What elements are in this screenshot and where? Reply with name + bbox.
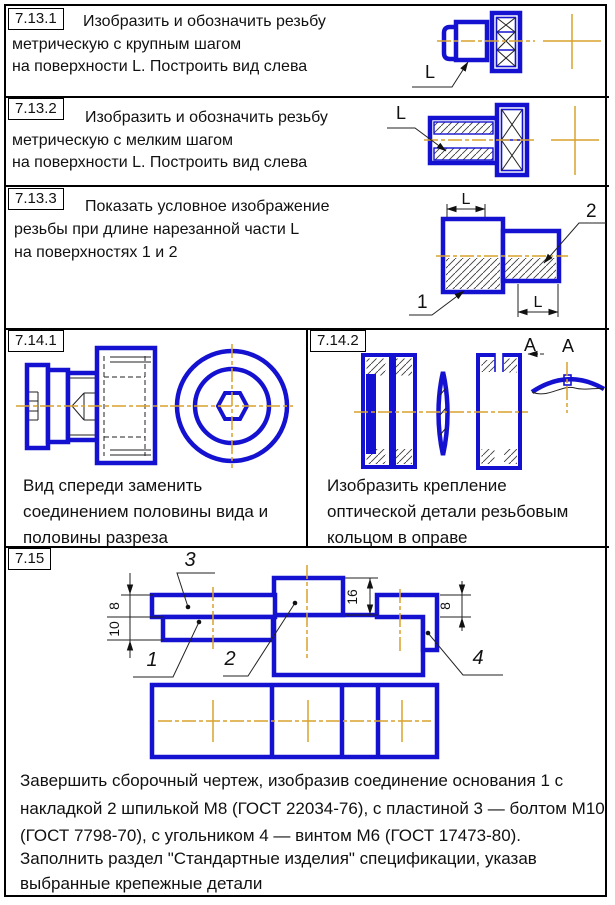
dim-label-8: 8 [106, 602, 122, 610]
section-hatch [504, 359, 517, 373]
section-hatch [482, 360, 495, 372]
section-hatch [396, 449, 412, 464]
dim-label-8: 8 [437, 602, 453, 610]
part-label-2: 2 [223, 648, 235, 670]
dim-label-L: L [462, 191, 471, 208]
leader-dot [426, 631, 431, 636]
worksheet-page: 7.13.1 7.13.2 7.13.3 7.14.1 7.14.2 7.15 … [0, 0, 615, 905]
leader-dot [186, 605, 191, 610]
drawing-7-15: 8 10 16 8 [106, 549, 503, 757]
section-hatch [482, 449, 495, 464]
drawing-7-13-3: L L 1 2 [409, 191, 606, 317]
section-hatch [434, 122, 493, 134]
drawing-7-13-2: L [387, 103, 599, 175]
part-label-1: 1 [417, 292, 428, 313]
dim-label-L: L [534, 294, 543, 311]
surface-label-L: L [396, 103, 406, 123]
section-hatch [434, 148, 493, 160]
part-label-1: 1 [146, 649, 157, 671]
view-label-A: A [562, 336, 574, 356]
mount-stem [389, 357, 396, 465]
surface-label-L: L [425, 62, 435, 82]
part2-boss [274, 578, 343, 615]
section-hatch [446, 258, 500, 289]
lens-outline [439, 372, 448, 455]
part1-plate [163, 617, 273, 640]
mount-wall [366, 374, 376, 454]
drawing-7-14-2: A A [354, 335, 604, 468]
dim-label-10: 10 [106, 621, 122, 637]
ring-slot-gap [495, 351, 503, 372]
section-hatch [396, 359, 412, 376]
leader-dot [197, 620, 202, 625]
leader-dot [293, 601, 298, 606]
section-hatch [367, 359, 386, 376]
drawing-7-13-1: L [412, 13, 601, 87]
part-label-4: 4 [472, 647, 483, 669]
part-label-2: 2 [586, 201, 597, 222]
dim-label-16: 16 [344, 589, 360, 605]
section-label-A: A [524, 335, 536, 355]
technical-drawings-layer: L L [0, 0, 615, 905]
section-hatch [504, 449, 517, 464]
section-hatch [505, 258, 556, 279]
leader-line [412, 62, 468, 87]
drawing-7-14-1 [16, 344, 293, 468]
part-label-3: 3 [184, 549, 195, 571]
